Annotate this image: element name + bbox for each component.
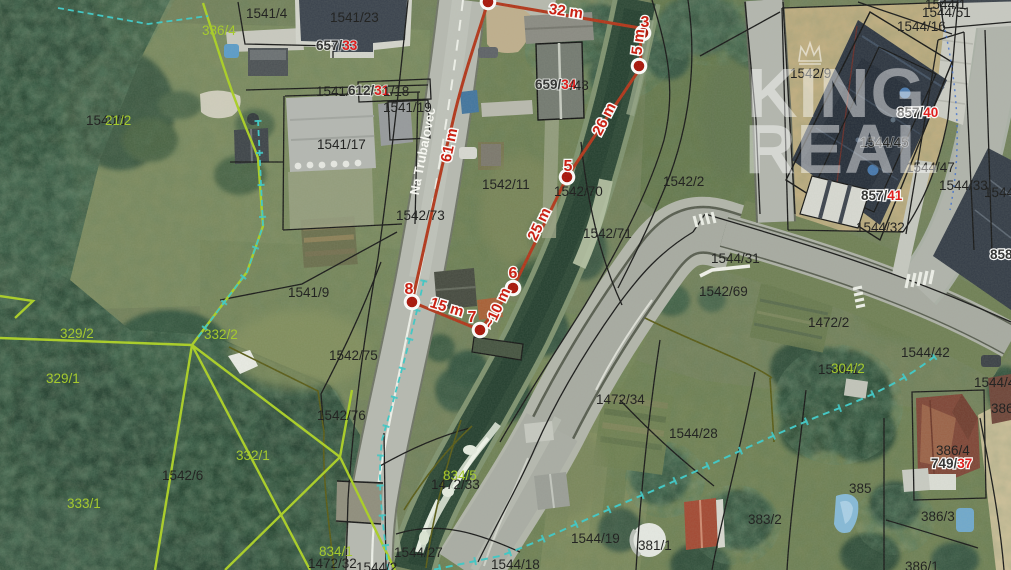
svg-text:REAL: REAL xyxy=(745,110,940,188)
